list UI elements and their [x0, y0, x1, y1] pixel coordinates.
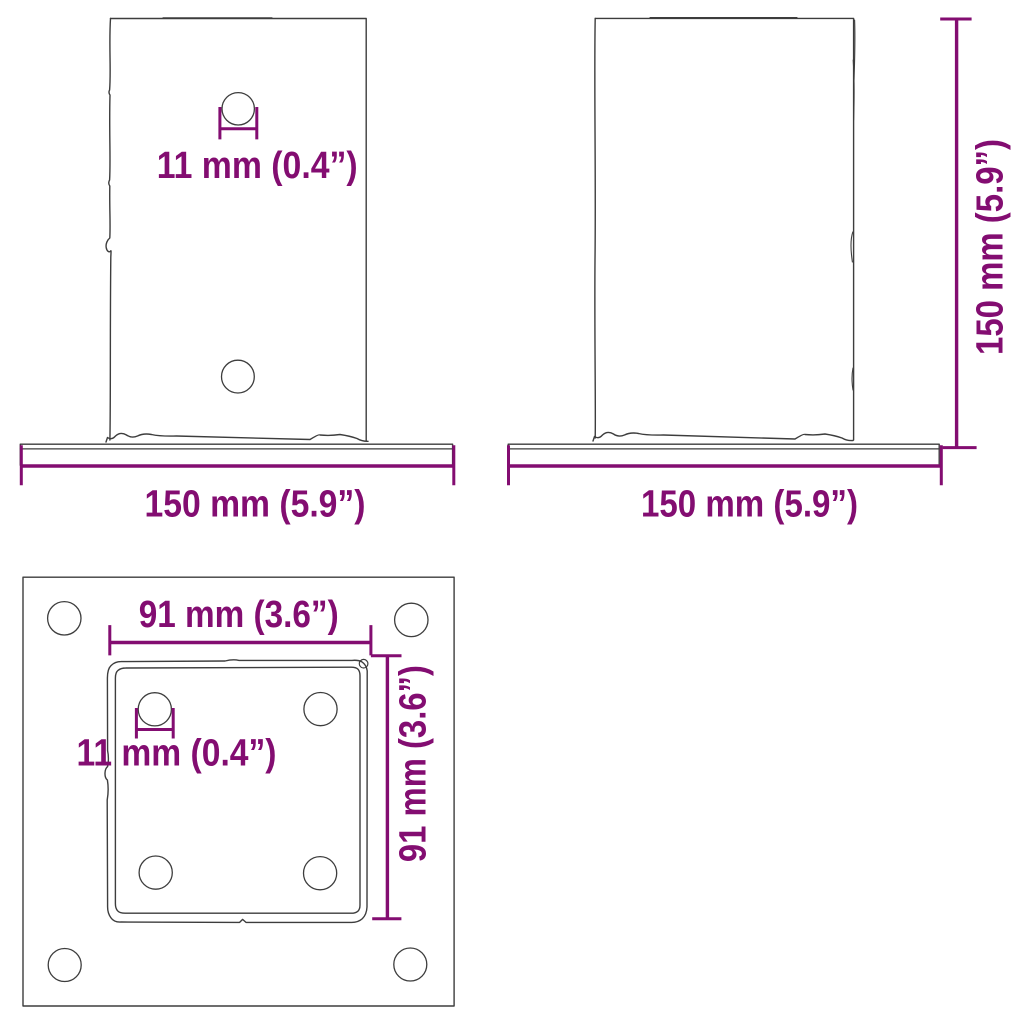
svg-text:91 mm (3.6”): 91 mm (3.6”) [139, 594, 339, 636]
svg-text:150 mm (5.9”): 150 mm (5.9”) [970, 139, 1012, 355]
svg-text:11 mm (0.4”): 11 mm (0.4”) [77, 732, 277, 774]
svg-text:150 mm (5.9”): 150 mm (5.9”) [145, 484, 366, 526]
svg-text:150 mm (5.9”): 150 mm (5.9”) [641, 484, 858, 526]
svg-text:11 mm (0.4”): 11 mm (0.4”) [157, 145, 358, 187]
svg-text:91 mm (3.6”): 91 mm (3.6”) [393, 665, 435, 862]
